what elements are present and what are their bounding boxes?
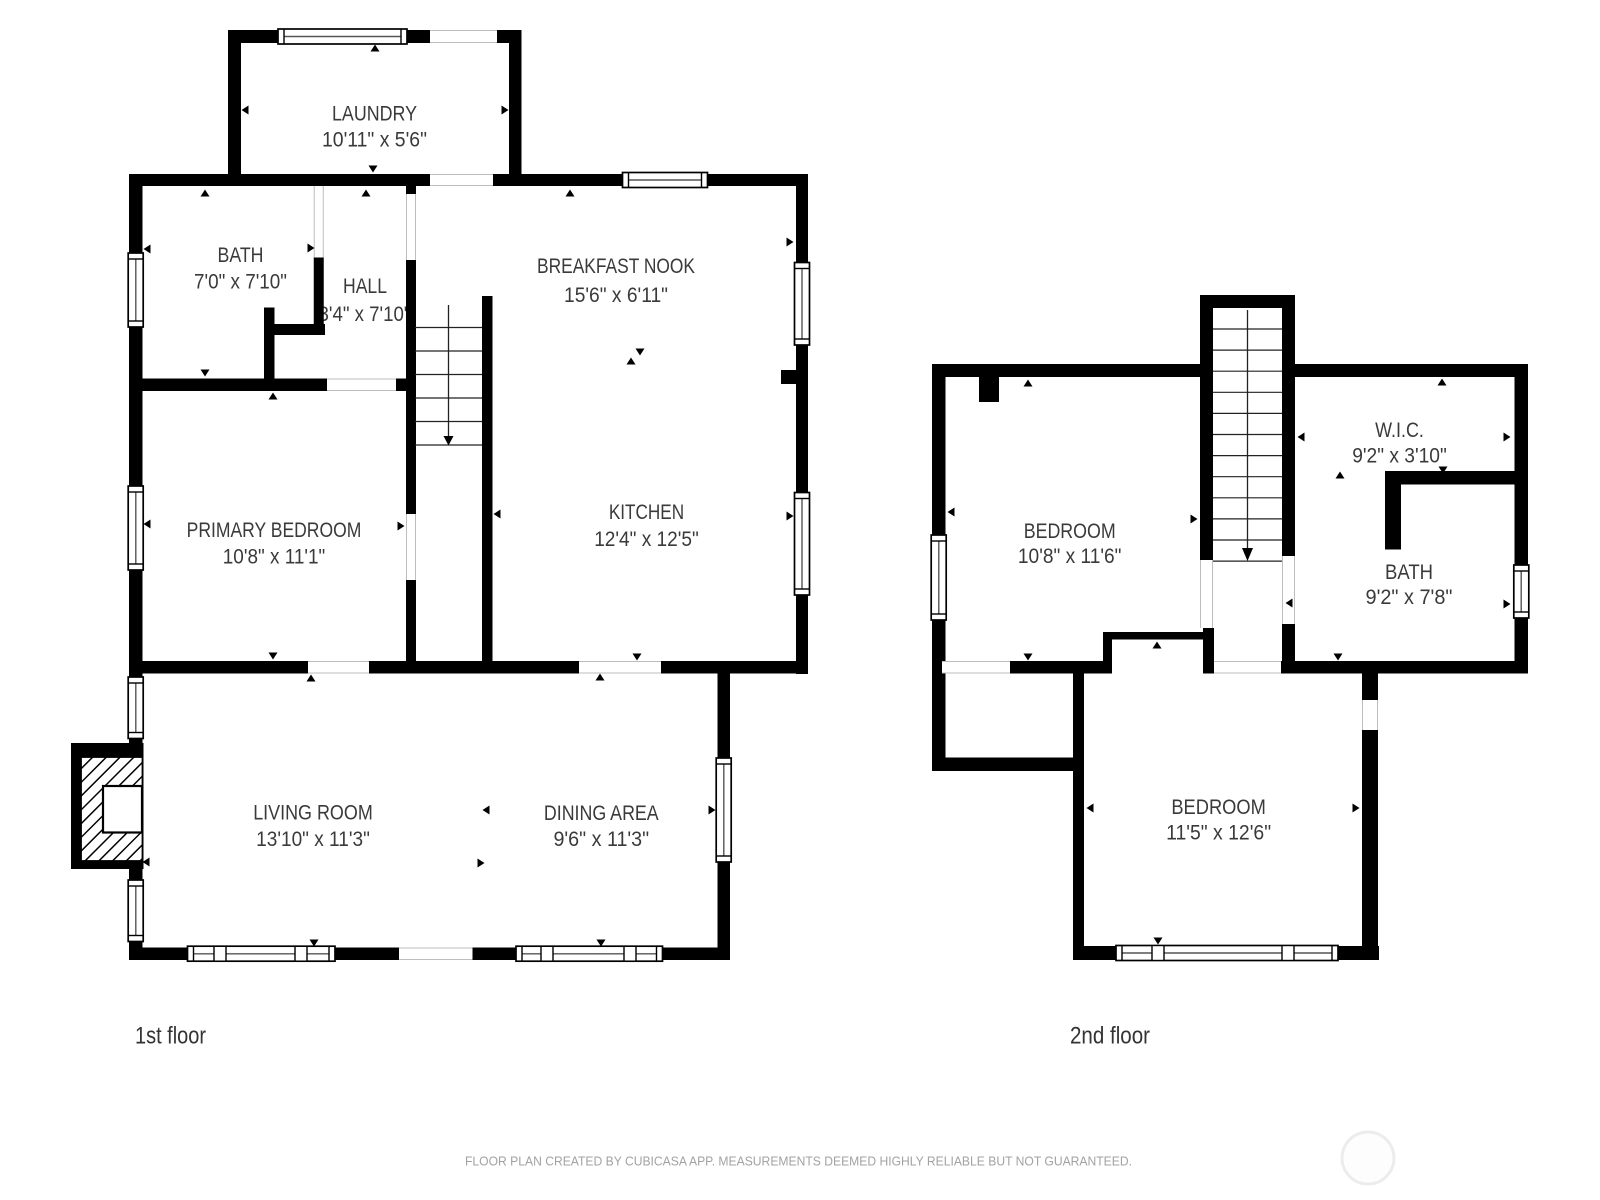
- svg-text:10'11" x 5'6": 10'11" x 5'6": [322, 129, 427, 152]
- svg-text:PRIMARY BEDROOM: PRIMARY BEDROOM: [187, 519, 362, 542]
- svg-text:7'0" x 7'10": 7'0" x 7'10": [194, 271, 287, 294]
- svg-text:1st floor: 1st floor: [135, 1023, 206, 1050]
- svg-text:LAUNDRY: LAUNDRY: [332, 103, 417, 126]
- svg-text:BATH: BATH: [1385, 561, 1433, 584]
- svg-text:DINING AREA: DINING AREA: [544, 802, 659, 825]
- svg-text:13'10" x 11'3": 13'10" x 11'3": [256, 828, 370, 851]
- svg-text:BATH: BATH: [218, 244, 264, 267]
- svg-text:BREAKFAST NOOK: BREAKFAST NOOK: [537, 255, 695, 278]
- svg-text:2nd floor: 2nd floor: [1070, 1023, 1150, 1050]
- svg-text:9'2" x 7'8": 9'2" x 7'8": [1366, 586, 1453, 609]
- svg-text:W.I.C.: W.I.C.: [1375, 419, 1424, 442]
- svg-text:HALL: HALL: [343, 275, 387, 298]
- svg-text:FLOOR PLAN CREATED BY CUBICASA: FLOOR PLAN CREATED BY CUBICASA APP. MEAS…: [465, 1154, 1132, 1169]
- svg-text:BEDROOM: BEDROOM: [1171, 796, 1266, 819]
- svg-text:12'4" x 12'5": 12'4" x 12'5": [594, 528, 699, 551]
- svg-text:9'6" x 11'3": 9'6" x 11'3": [553, 828, 649, 851]
- svg-text:10'8" x 11'1": 10'8" x 11'1": [223, 546, 326, 569]
- svg-text:15'6" x 6'11": 15'6" x 6'11": [564, 284, 668, 307]
- svg-text:3'4" x 7'10": 3'4" x 7'10": [319, 303, 411, 326]
- svg-text:KITCHEN: KITCHEN: [609, 501, 684, 524]
- svg-text:10'8" x 11'6": 10'8" x 11'6": [1018, 545, 1122, 568]
- svg-text:LIVING ROOM: LIVING ROOM: [253, 802, 373, 825]
- svg-text:BEDROOM: BEDROOM: [1024, 520, 1116, 543]
- svg-text:9'2" x 3'10": 9'2" x 3'10": [1352, 445, 1447, 468]
- svg-text:11'5" x 12'6": 11'5" x 12'6": [1166, 822, 1271, 845]
